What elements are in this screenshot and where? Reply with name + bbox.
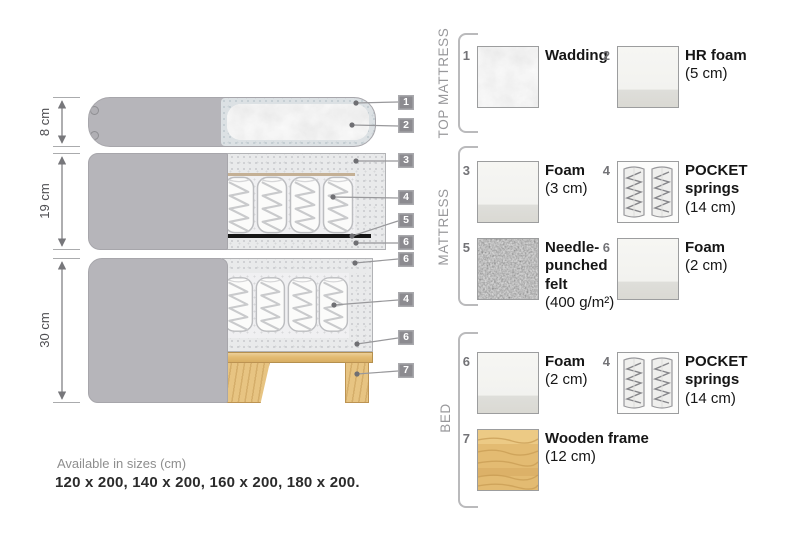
legend-item-label: POCKET springs (14 cm) bbox=[685, 162, 765, 217]
legend-item-name: Foam bbox=[685, 239, 725, 256]
section-title-bed: BED bbox=[438, 338, 454, 498]
callout-dots bbox=[330, 100, 359, 376]
legend-item-number: 7 bbox=[456, 431, 470, 446]
legend-item-name: Foam bbox=[545, 162, 585, 179]
mattress-construction-infographic: 8 cm 19 cm 30 cm 1 2 3 4 5 6 6 4 6 7 TOP… bbox=[0, 0, 800, 533]
legend-item-name: POCKET springs bbox=[685, 162, 748, 197]
legend-item-size: (14 cm) bbox=[685, 199, 736, 216]
legend-item-number: 5 bbox=[456, 240, 470, 255]
callout-badge: 4 bbox=[398, 292, 414, 307]
legend-item-number: 6 bbox=[456, 354, 470, 369]
available-sizes: 120 x 200, 140 x 200, 160 x 200, 180 x 2… bbox=[55, 474, 360, 491]
pocket-springs-swatch bbox=[617, 161, 679, 223]
callout-badge: 6 bbox=[398, 330, 414, 345]
pocket-springs-illustration bbox=[618, 162, 678, 222]
legend-item-size: (2 cm) bbox=[545, 371, 588, 388]
legend-item-size: (14 cm) bbox=[685, 390, 736, 407]
felt-texture bbox=[478, 239, 538, 299]
wood-texture bbox=[478, 430, 538, 490]
pocket-springs-swatch bbox=[617, 352, 679, 414]
foam-swatch bbox=[477, 352, 539, 414]
dimension-label-mattress: 19 cm bbox=[37, 171, 51, 231]
legend-item-name: POCKET springs bbox=[685, 353, 748, 388]
legend-item-label: Needle-punched felt (400 g/m²) bbox=[545, 239, 625, 312]
legend-item-label: POCKET springs (14 cm) bbox=[685, 353, 765, 408]
foam-swatch bbox=[477, 161, 539, 223]
legend-item-number: 4 bbox=[596, 163, 610, 178]
callout-badge: 3 bbox=[398, 153, 414, 168]
legend-item-label: Foam (2 cm) bbox=[545, 353, 625, 390]
legend-item-label: Foam (3 cm) bbox=[545, 162, 625, 199]
callout-badge: 5 bbox=[398, 213, 414, 228]
dimension-label-bed: 30 cm bbox=[37, 300, 51, 360]
legend-item-size: (400 g/m²) bbox=[545, 294, 614, 311]
dimension-label-top-mattress: 8 cm bbox=[37, 92, 51, 152]
wadding-swatch bbox=[477, 46, 539, 108]
wood-swatch bbox=[477, 429, 539, 491]
wadding-texture bbox=[478, 47, 538, 107]
pocket-springs-illustration bbox=[618, 353, 678, 413]
legend-item-number: 1 bbox=[456, 48, 470, 63]
callout-badge: 6 bbox=[398, 252, 414, 267]
felt-swatch bbox=[477, 238, 539, 300]
callout-badge: 2 bbox=[398, 118, 414, 133]
legend-item-size: (2 cm) bbox=[685, 257, 728, 274]
callout-badge: 6 bbox=[398, 235, 414, 250]
foam-swatch bbox=[617, 46, 679, 108]
legend-item-size: (3 cm) bbox=[545, 180, 588, 197]
callout-leader-lines bbox=[333, 102, 398, 374]
legend-item-number: 2 bbox=[596, 48, 610, 63]
section-title-mattress: MATTRESS bbox=[436, 147, 452, 307]
legend-item-number: 3 bbox=[456, 163, 470, 178]
callout-badge: 1 bbox=[398, 95, 414, 110]
legend-item-name: Foam bbox=[545, 353, 585, 370]
legend-item-label: Foam (2 cm) bbox=[685, 239, 765, 276]
legend-item-name: HR foam bbox=[685, 47, 747, 64]
legend-item-label: HR foam (5 cm) bbox=[685, 47, 765, 84]
availability-note: Available in sizes (cm) bbox=[57, 456, 186, 471]
foam-swatch bbox=[617, 238, 679, 300]
legend-item-name: Wooden frame bbox=[545, 430, 649, 447]
legend-item-number: 4 bbox=[596, 354, 610, 369]
section-title-top-mattress: TOP MATTRESS bbox=[436, 3, 452, 163]
legend-item-size: (5 cm) bbox=[685, 65, 728, 82]
legend-item-number: 6 bbox=[596, 240, 610, 255]
dimension-ticks bbox=[53, 98, 80, 403]
callout-badge: 4 bbox=[398, 190, 414, 205]
legend-item-label: Wadding bbox=[545, 47, 625, 65]
legend-item-size: (12 cm) bbox=[545, 448, 596, 465]
legend-item-label: Wooden frame (12 cm) bbox=[545, 430, 685, 467]
callout-badge: 7 bbox=[398, 363, 414, 378]
